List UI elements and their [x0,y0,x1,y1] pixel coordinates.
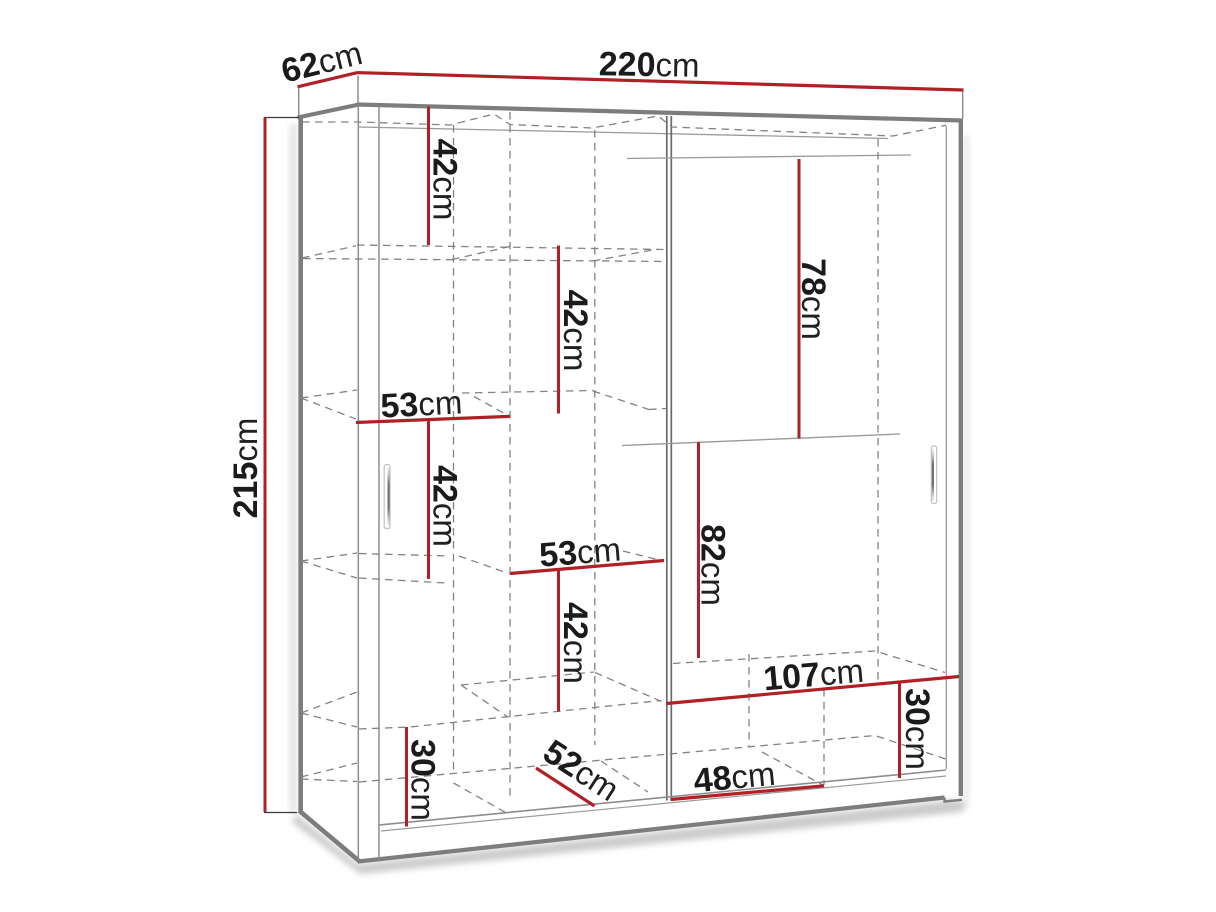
svg-text:78cm: 78cm [794,258,832,340]
svg-text:42cm: 42cm [426,139,464,221]
svg-text:42cm: 42cm [426,465,464,547]
svg-text:53cm: 53cm [380,383,464,425]
svg-text:107cm: 107cm [762,652,866,699]
svg-text:220cm: 220cm [599,45,700,84]
svg-text:42cm: 42cm [556,602,594,684]
svg-text:42cm: 42cm [556,290,594,372]
svg-text:215cm: 215cm [227,418,265,519]
svg-text:82cm: 82cm [694,524,732,606]
svg-text:53cm: 53cm [538,530,623,574]
svg-text:30cm: 30cm [898,688,936,770]
svg-text:30cm: 30cm [404,739,442,821]
